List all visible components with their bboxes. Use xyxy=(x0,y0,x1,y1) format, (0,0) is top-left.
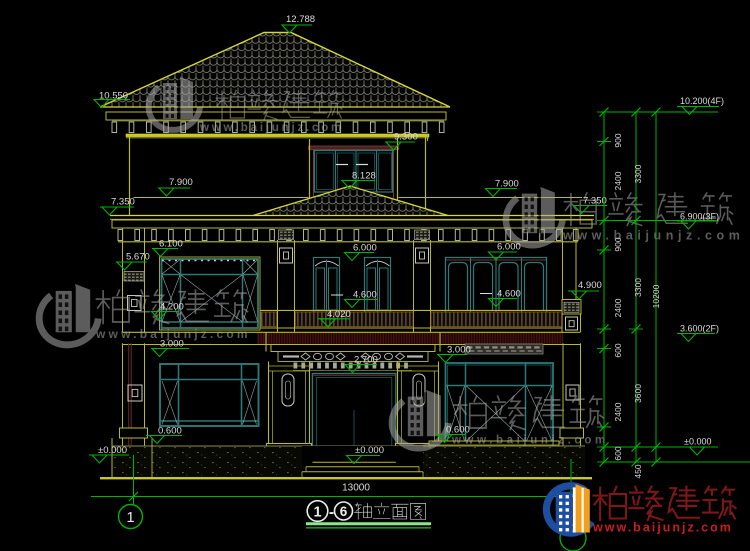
svg-text:www.baijunjz.com: www.baijunjz.com xyxy=(451,435,609,447)
svg-text:3.000: 3.000 xyxy=(447,345,471,356)
svg-text:7.350: 7.350 xyxy=(583,196,607,207)
svg-text:3300: 3300 xyxy=(633,164,643,183)
svg-text:±0.000: ±0.000 xyxy=(684,437,711,447)
svg-text:450: 450 xyxy=(633,464,643,478)
svg-text:9.300: 9.300 xyxy=(394,132,418,143)
svg-text:6.900(3F): 6.900(3F) xyxy=(680,212,719,222)
svg-text:www.baijunjz.com: www.baijunjz.com xyxy=(592,521,733,535)
svg-text:0.600: 0.600 xyxy=(158,426,182,437)
svg-text:5.670: 5.670 xyxy=(126,252,150,263)
svg-text:900: 900 xyxy=(613,133,623,147)
svg-text:4.200: 4.200 xyxy=(160,302,184,313)
svg-text:4.600: 4.600 xyxy=(353,290,377,301)
svg-text:2400: 2400 xyxy=(613,171,623,190)
svg-text:6: 6 xyxy=(340,504,348,519)
svg-text:10200: 10200 xyxy=(651,284,661,308)
svg-text:1: 1 xyxy=(313,505,321,521)
svg-text:600: 600 xyxy=(613,343,623,357)
svg-text:0.600: 0.600 xyxy=(446,425,470,436)
svg-text:2.700: 2.700 xyxy=(354,355,378,366)
svg-text:7.350: 7.350 xyxy=(111,197,135,208)
svg-text:-: - xyxy=(329,504,334,521)
svg-text:3300: 3300 xyxy=(633,278,643,297)
svg-text:4.900: 4.900 xyxy=(578,280,602,291)
svg-text:900: 900 xyxy=(613,237,623,251)
svg-text:8.128: 8.128 xyxy=(352,171,376,182)
svg-text:4.600: 4.600 xyxy=(497,289,521,300)
svg-text:2400: 2400 xyxy=(613,298,623,317)
svg-text:±0.000: ±0.000 xyxy=(98,445,127,456)
svg-text:2400: 2400 xyxy=(613,402,623,421)
svg-text:1: 1 xyxy=(126,509,134,526)
svg-text:12.788: 12.788 xyxy=(286,14,315,25)
svg-text:6.000: 6.000 xyxy=(353,243,377,254)
svg-text:6.000: 6.000 xyxy=(497,242,521,253)
svg-text:10.200(4F): 10.200(4F) xyxy=(680,96,724,106)
svg-text:600: 600 xyxy=(613,446,623,460)
svg-text:3600: 3600 xyxy=(633,384,643,403)
svg-text:7.900: 7.900 xyxy=(169,177,193,188)
svg-text:www.baijunjz.com: www.baijunjz.com xyxy=(199,122,344,134)
svg-text:13000: 13000 xyxy=(342,483,370,494)
svg-text:6.100: 6.100 xyxy=(159,239,183,250)
svg-text:7.900: 7.900 xyxy=(495,179,519,190)
svg-text:±0.000: ±0.000 xyxy=(355,445,384,456)
svg-text:3.600(2F): 3.600(2F) xyxy=(680,324,719,334)
svg-text:www.baijunjz.com: www.baijunjz.com xyxy=(562,229,744,243)
svg-text:3.000: 3.000 xyxy=(160,339,184,350)
